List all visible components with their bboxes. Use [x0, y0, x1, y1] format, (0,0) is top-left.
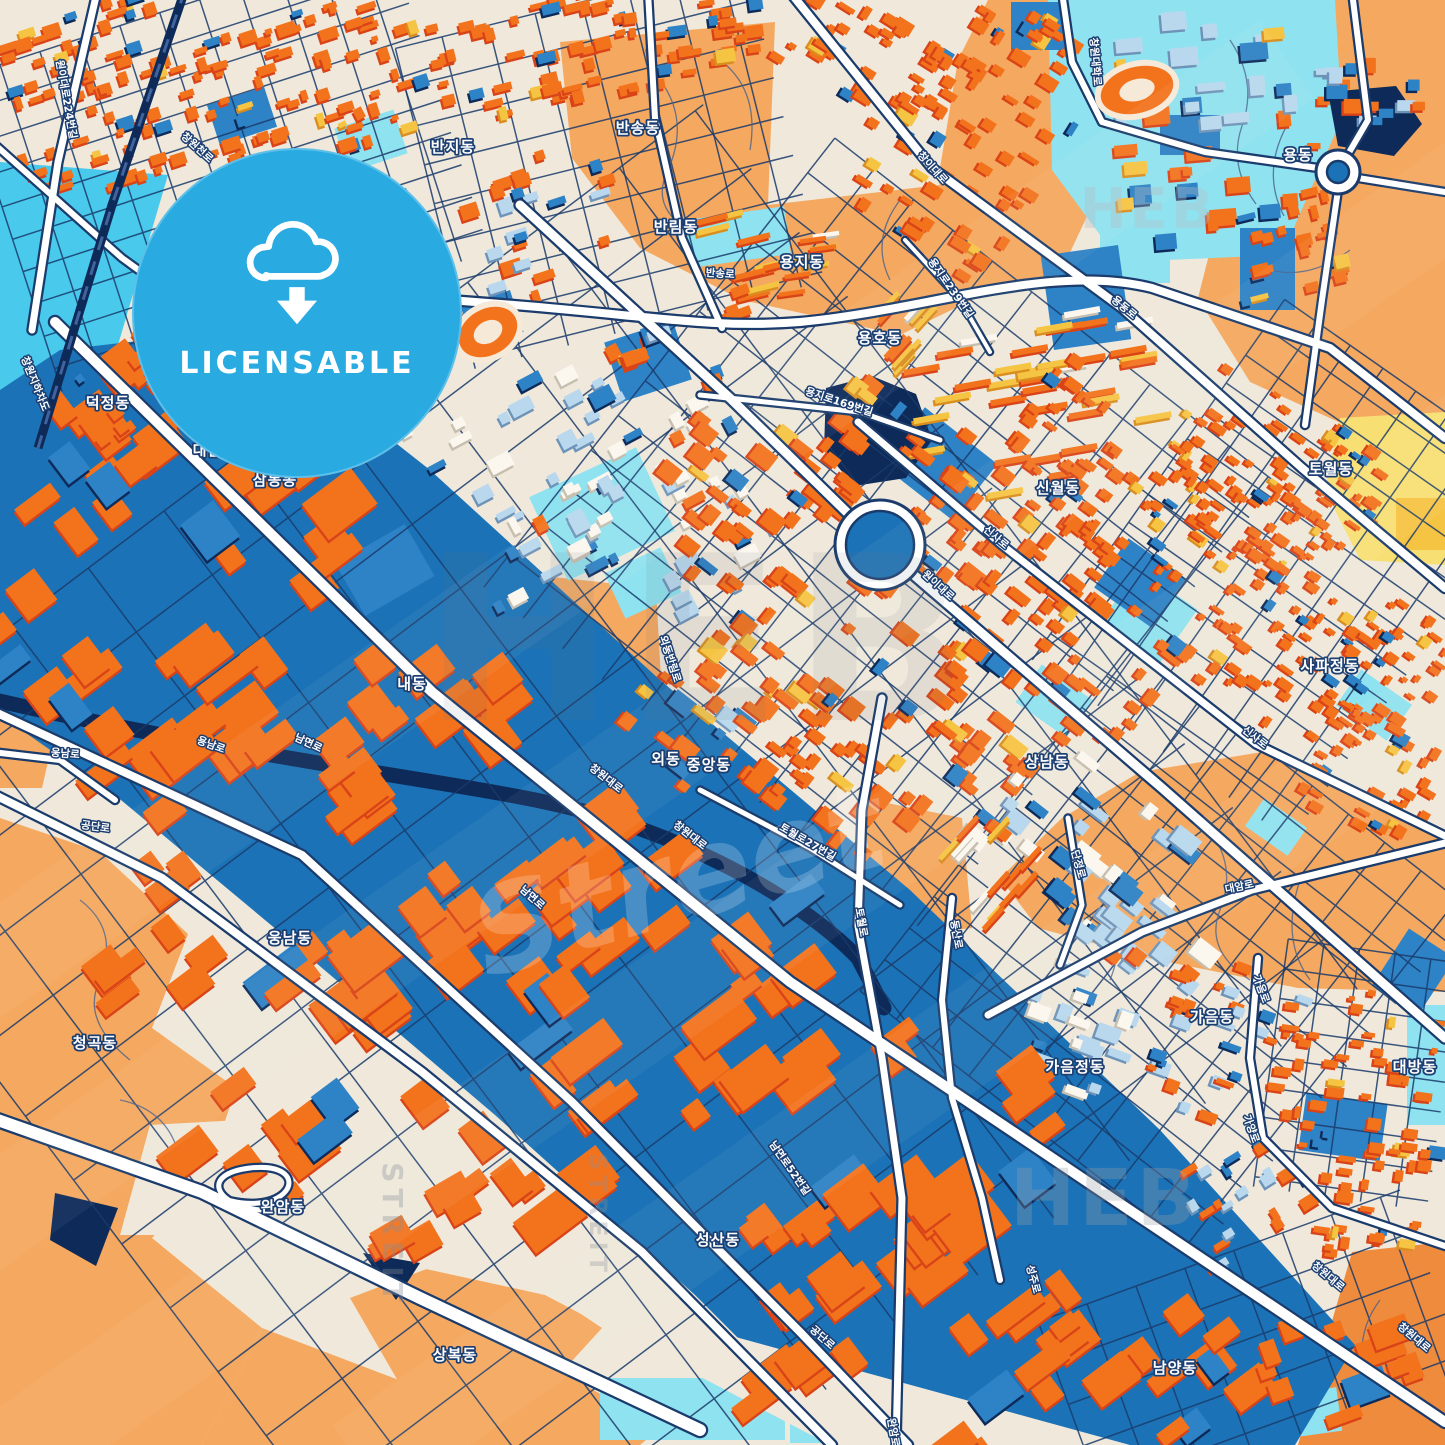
district-label: 용지동	[780, 253, 824, 271]
building	[708, 15, 718, 26]
district-label: 웅남동	[268, 929, 312, 947]
building	[1312, 1137, 1322, 1147]
building	[1281, 1109, 1293, 1121]
building	[1394, 1170, 1404, 1182]
building	[1372, 1048, 1383, 1057]
building	[1413, 102, 1425, 111]
watermark-text: HEB	[1080, 177, 1217, 242]
district-label: 외동	[651, 750, 681, 768]
building	[1367, 990, 1376, 997]
building	[1259, 203, 1280, 219]
building	[692, 48, 702, 55]
district-label: 사파정동	[1300, 657, 1359, 675]
district-label: 내동	[397, 675, 427, 693]
building	[1202, 23, 1217, 38]
district-label: 반송동	[616, 119, 660, 137]
building	[1373, 117, 1383, 125]
building	[1367, 1117, 1382, 1131]
district-label: 용호동	[858, 329, 902, 347]
district-label: 대방동	[1393, 1058, 1437, 1076]
building	[1403, 1128, 1418, 1140]
building	[629, 28, 637, 38]
building	[1389, 1076, 1402, 1085]
building	[1329, 70, 1342, 84]
building	[1302, 1120, 1315, 1130]
district-label: 반림동	[654, 218, 698, 236]
cloud-download-icon	[212, 200, 382, 328]
building	[1361, 1179, 1370, 1190]
building	[1226, 176, 1251, 194]
building	[1322, 1129, 1331, 1139]
road-label: 웅남로	[50, 746, 80, 762]
watermark-text: STREIT	[376, 1162, 409, 1307]
licensable-badge[interactable]: LICENSABLE	[132, 148, 462, 478]
building	[1324, 1243, 1334, 1251]
watermark-text: HEB	[1010, 1154, 1200, 1244]
district-label: 덕정동	[86, 394, 130, 412]
building	[715, 48, 736, 64]
district-label: 용동	[1283, 146, 1313, 164]
building	[1420, 1149, 1431, 1159]
building	[623, 12, 637, 25]
building	[1379, 109, 1393, 118]
district-label: 신월동	[1036, 479, 1080, 497]
watermark-text: STREIT	[584, 1153, 612, 1277]
building	[1115, 37, 1143, 53]
district-label: 반지동	[431, 138, 475, 156]
building	[1340, 1236, 1350, 1249]
district-label: 상복동	[433, 1346, 477, 1364]
district-label: 가음정동	[1045, 1058, 1104, 1076]
building	[1161, 11, 1188, 31]
watermark-text: HEB	[423, 508, 978, 775]
building	[1170, 46, 1199, 67]
building	[1348, 996, 1355, 1001]
district-label: 상남동	[1025, 753, 1069, 771]
district-label: 성산동	[696, 1231, 740, 1249]
building	[735, 34, 747, 43]
building	[658, 64, 672, 76]
building	[1350, 1003, 1363, 1014]
map-poster: HEBStreetSTREITSTREITHEBHEB반송로창이대로용동로용지로…	[0, 0, 1445, 1445]
district-label: 토월동	[1309, 460, 1353, 478]
building	[1294, 1058, 1305, 1070]
building	[1320, 1172, 1332, 1184]
building	[721, 7, 733, 18]
building	[1326, 85, 1347, 99]
building	[1431, 1048, 1438, 1054]
building	[678, 45, 694, 58]
district-label: 남양동	[1153, 1359, 1197, 1377]
building	[1369, 1142, 1385, 1155]
district-label: 가음동	[1190, 1008, 1234, 1026]
district-label: 완암동	[261, 1198, 305, 1216]
building	[744, 24, 764, 39]
building	[1408, 80, 1420, 91]
building	[1375, 1160, 1385, 1170]
badge-label: LICENSABLE	[179, 346, 414, 381]
district-label: 청곡동	[73, 1034, 117, 1052]
building	[1417, 1159, 1432, 1173]
roundabout-island	[1327, 161, 1349, 183]
district-label: 중앙동	[687, 756, 731, 774]
building	[748, 0, 764, 11]
road-label: 반송로	[705, 266, 735, 281]
